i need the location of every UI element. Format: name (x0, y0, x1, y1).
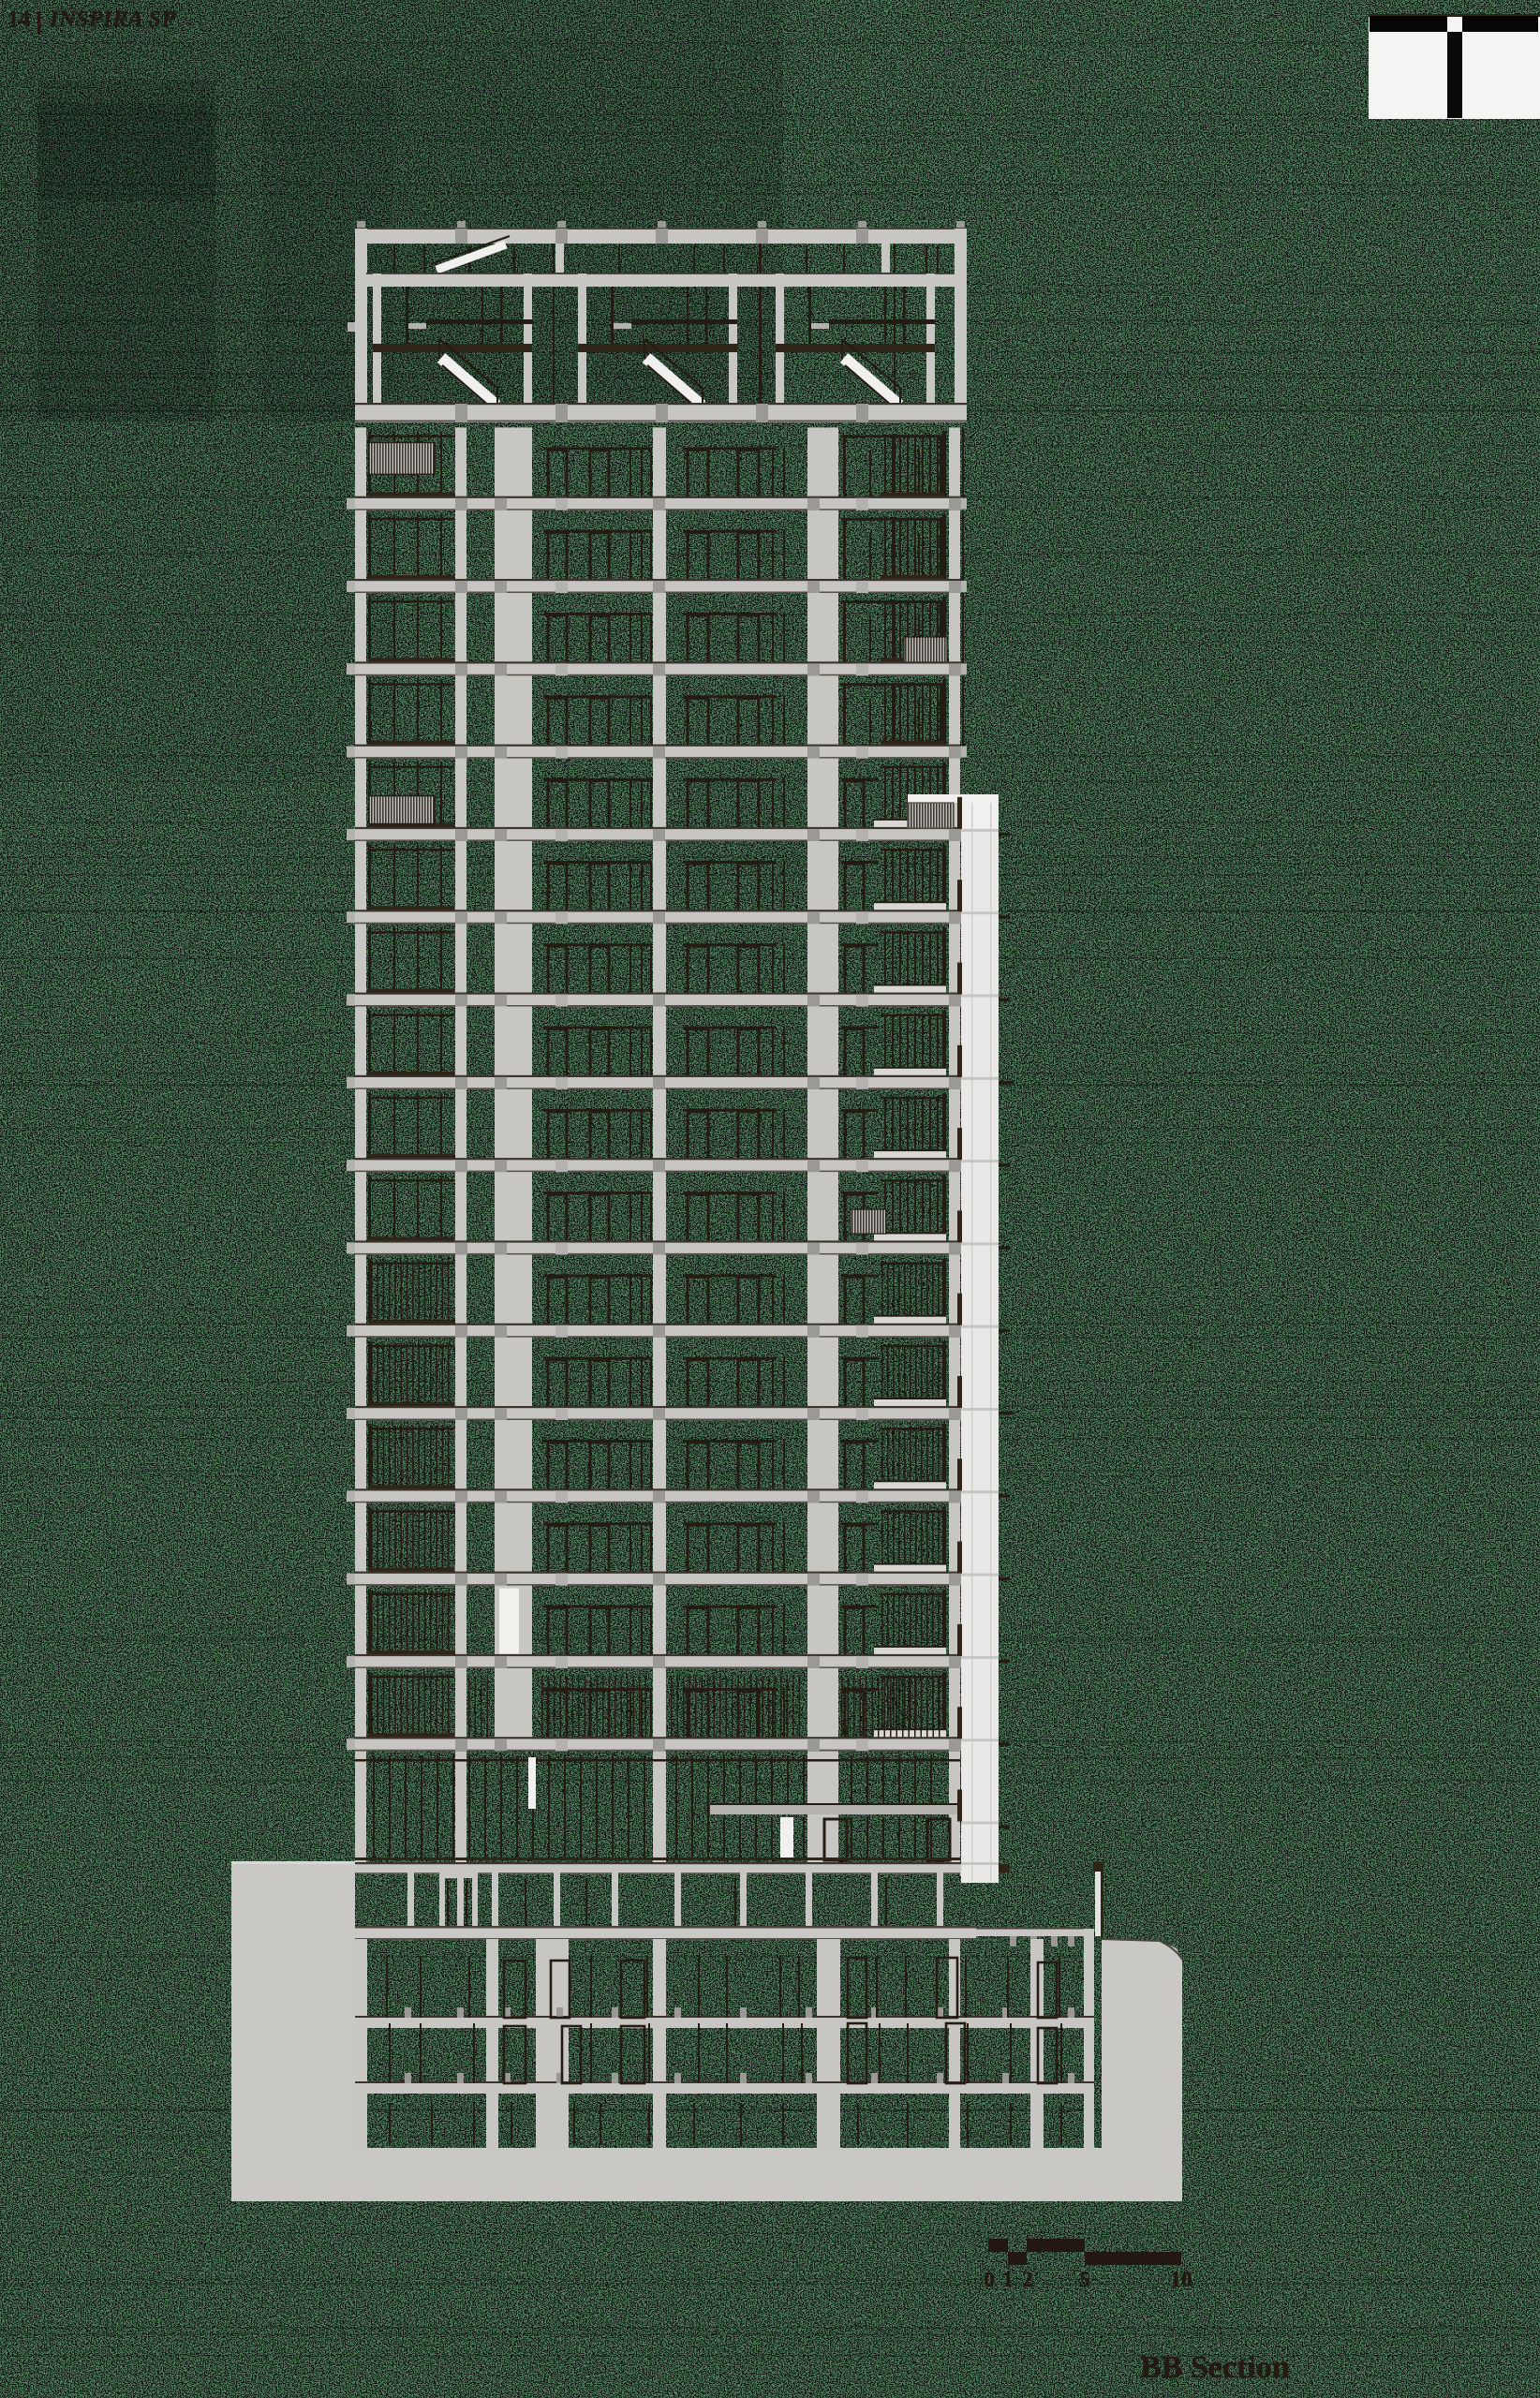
svg-text:BB Section: BB Section (1140, 2350, 1290, 2385)
svg-text:5: 5 (1079, 2268, 1090, 2291)
svg-text:2: 2 (1022, 2268, 1033, 2291)
svg-text:1: 1 (1002, 2268, 1014, 2291)
svg-text:0: 0 (984, 2268, 995, 2291)
svg-text:INSPIRA SP: INSPIRA SP (49, 7, 176, 32)
svg-text:10: 10 (1171, 2268, 1192, 2291)
svg-text:14: 14 (7, 7, 30, 32)
